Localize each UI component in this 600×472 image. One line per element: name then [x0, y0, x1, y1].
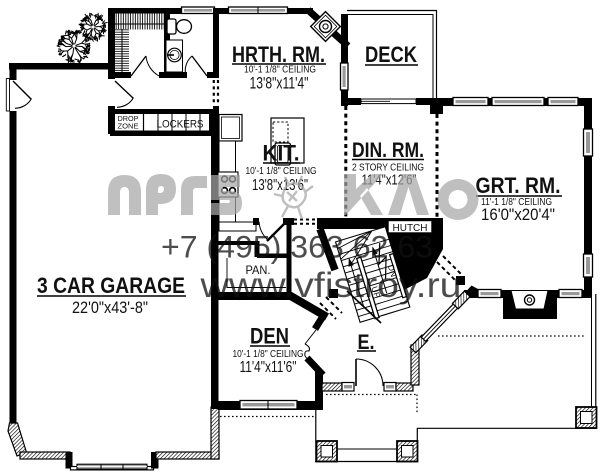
- svg-text:+7 (495) 363 62 63: +7 (495) 363 62 63: [161, 229, 433, 265]
- svg-text:LOCKERS: LOCKERS: [157, 119, 204, 131]
- svg-text:DEN: DEN: [250, 324, 289, 349]
- svg-text:16'0"x20'4": 16'0"x20'4": [481, 205, 555, 224]
- svg-text:13'8"x11'4": 13'8"x11'4": [250, 74, 309, 93]
- svg-text:22'0"x43'-8": 22'0"x43'-8": [72, 299, 148, 317]
- svg-text:ZONE: ZONE: [118, 124, 139, 131]
- svg-text:GRT. RM.: GRT. RM.: [476, 173, 561, 198]
- svg-text:11'4"x11'6": 11'4"x11'6": [240, 359, 297, 376]
- svg-text:DROP: DROP: [118, 116, 139, 123]
- svg-text:DECK: DECK: [365, 42, 417, 67]
- svg-text:10'-1 1/8" CEILING: 10'-1 1/8" CEILING: [246, 166, 317, 177]
- svg-text:DIN. RM.: DIN. RM.: [352, 139, 424, 162]
- svg-text:3 CAR GARAGE: 3 CAR GARAGE: [37, 273, 185, 298]
- svg-text:KIT.: KIT.: [263, 141, 300, 166]
- svg-text:www.vfistroy.ru: www.vfistroy.ru: [199, 266, 461, 305]
